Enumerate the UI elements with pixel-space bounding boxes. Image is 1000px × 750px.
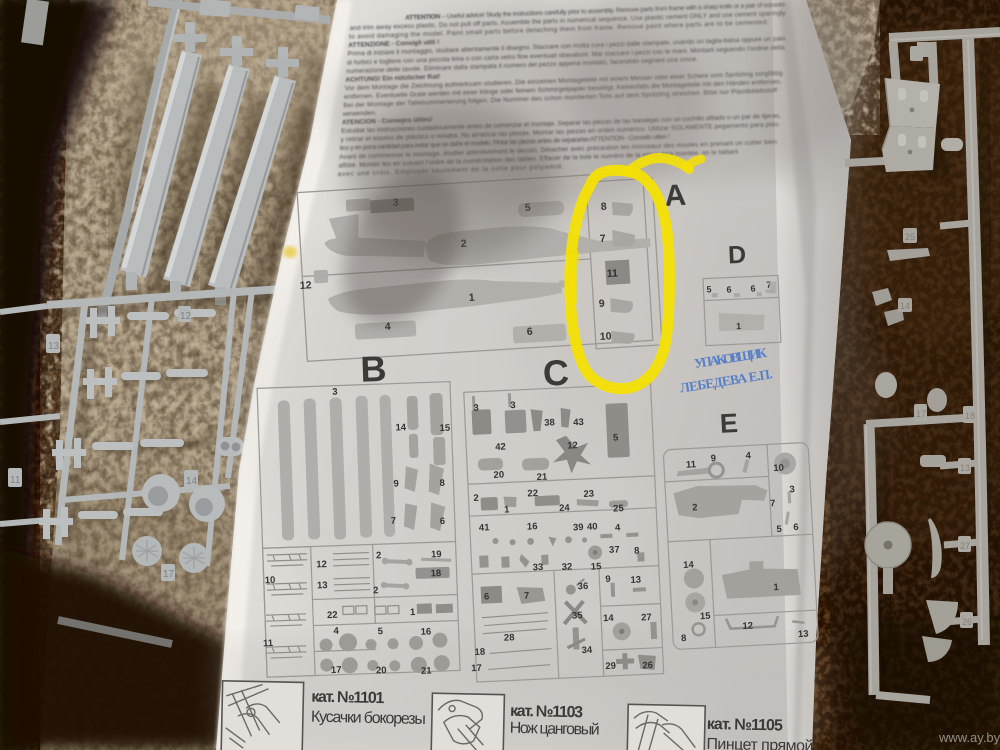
svg-text:www.ay.by: www.ay.by: [938, 730, 1000, 745]
